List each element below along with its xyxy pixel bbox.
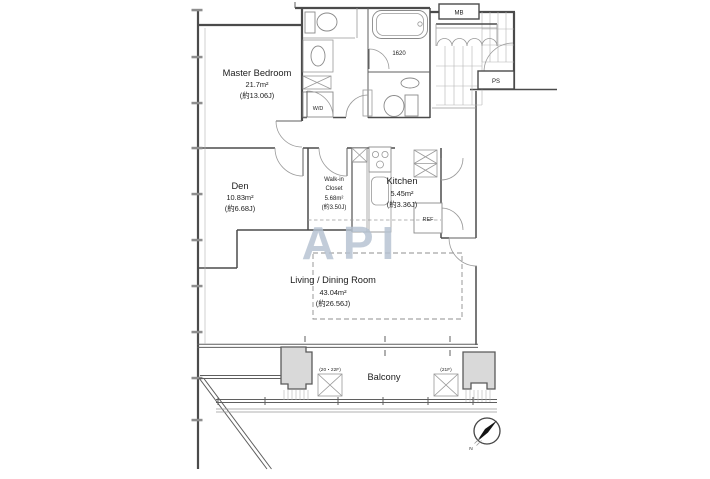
- sink-icon: [401, 78, 419, 88]
- stove-icon: [369, 147, 391, 172]
- den-tatami: (約6.68J): [225, 204, 255, 213]
- meter-box: MB: [439, 4, 479, 19]
- washer-dryer-label: W/D: [313, 106, 324, 112]
- drain-box-left: [318, 374, 342, 396]
- bathroom: 1620: [369, 11, 428, 70]
- living-dining-tatami: (約26.56J): [316, 299, 351, 308]
- living-dining-area: 43.04m²: [319, 288, 347, 297]
- balcony-pillar-right: [463, 352, 495, 389]
- bathtub-size-label: 1620: [392, 51, 406, 57]
- living-room-door-swing: [449, 238, 477, 266]
- kitchen-tatami: (約3.36J): [387, 200, 417, 209]
- kitchen-label: Kitchen: [386, 176, 417, 186]
- corridor-door-swing-lower: [441, 208, 463, 230]
- walk-in-closet-area: 5.68m²: [325, 196, 344, 202]
- walk-in-closet-label-1: Walk-in: [324, 177, 344, 183]
- cabinet-icon: [303, 76, 331, 89]
- master-bedroom-door-swing: [276, 121, 302, 147]
- balcony-floor-note-left: (20・22F): [319, 367, 341, 373]
- den-door-swing: [275, 148, 303, 176]
- compass-north-label: N: [469, 446, 473, 452]
- powder-room: W/D: [303, 8, 357, 117]
- refrigerator-box: REF: [414, 203, 442, 233]
- kitchen-cabinet-hatch: [414, 150, 437, 177]
- toilet-room: [346, 78, 419, 117]
- balcony-label: Balcony: [367, 372, 400, 382]
- balcony-outer-edge: [199, 376, 281, 470]
- walk-in-closet-tatami: (約3.50J): [322, 203, 347, 211]
- den-label: Den: [231, 181, 248, 191]
- meter-box-label: MB: [455, 11, 464, 17]
- kitchen-area: 5.45m²: [390, 189, 414, 198]
- walk-in-closet-label-2: Closet: [325, 186, 342, 192]
- entry-closet-hanger-icon: [436, 24, 497, 46]
- floorplan-page: MB PS 1620 W/D: [0, 0, 710, 479]
- toilet-room-door-swing: [346, 95, 368, 117]
- vanity-sink-icon: [303, 40, 333, 72]
- toilet-icon: [305, 12, 337, 33]
- closet-door-swing: [319, 148, 347, 176]
- floor-plan-canvas: MB PS 1620 W/D: [0, 0, 710, 479]
- master-bedroom-tatami: (約13.06J): [240, 91, 275, 100]
- living-dining-label: Living / Dining Room: [290, 275, 376, 285]
- den-area: 10.83m²: [226, 193, 254, 202]
- pipe-shaft-label: PS: [492, 79, 500, 85]
- corridor-door-swing-upper: [441, 158, 463, 180]
- sliding-window-ticks: [305, 336, 450, 356]
- bathroom-door-swing: [369, 49, 389, 69]
- entry-tile-grid: [436, 12, 514, 105]
- balcony-pillar-left: [281, 347, 312, 389]
- toilet-icon: [384, 95, 418, 117]
- pipe-shaft-box: PS: [478, 71, 514, 89]
- balcony-floor-note-right: (21F): [440, 367, 452, 373]
- master-bedroom-label: Master Bedroom: [223, 68, 292, 78]
- watermark: API: [302, 217, 403, 269]
- drain-box-right: [434, 374, 458, 396]
- master-bedroom-area: 21.7m²: [245, 80, 269, 89]
- entry-door-swing: [484, 43, 513, 72]
- counter-end-box: [352, 148, 367, 162]
- balcony-area: (20・22F) (21F) Balcony: [199, 347, 497, 469]
- compass: N: [469, 418, 500, 452]
